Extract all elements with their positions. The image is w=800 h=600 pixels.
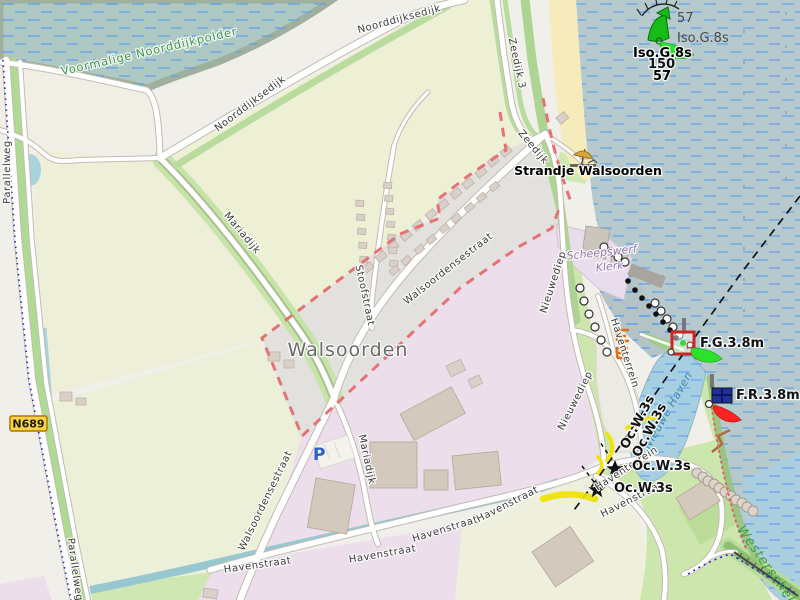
place-label-walsoorden: Walsoorden [288, 339, 409, 361]
parking-icon[interactable]: P [313, 445, 325, 465]
street-label-parallelweg: Parallelweg [2, 140, 13, 204]
industrial-building [307, 478, 355, 534]
fr-light-label: F.R.3.8m [736, 388, 800, 403]
map-viewport[interactable]: P N689 Voormalige Noorddijkpolder Walsoo… [0, 0, 800, 600]
fg-light-label: F.G.3.8m [700, 336, 764, 351]
beach-label: Strandje Walsoorden [514, 163, 662, 178]
route-badge-n689: N689 [10, 416, 47, 431]
buoy-number-label: 57 [677, 11, 694, 26]
oc-light-label-2: Oc.W.3s [614, 481, 673, 496]
route-badge-text: N689 [12, 418, 44, 431]
buoy-character-label: Iso.G.8s [677, 31, 729, 46]
buoy-character-bold-label: Iso.G.8s [633, 46, 692, 61]
oc-light-label-1: Oc.W.3s [632, 459, 691, 474]
map-canvas[interactable]: P N689 Voormalige Noorddijkpolder Walsoo… [0, 0, 800, 600]
buoy-number-bold-label: 57 [653, 69, 671, 84]
